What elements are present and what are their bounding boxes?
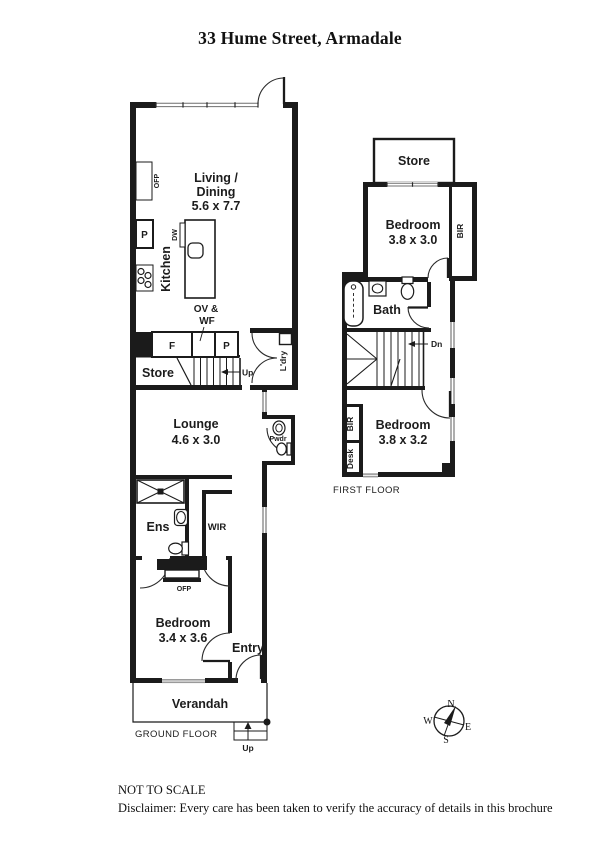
- disclaimer-text: Disclaimer: Every care has been taken to…: [118, 801, 553, 815]
- stairs-up-label: Up: [242, 368, 253, 378]
- bedroom-gf-dims: 3.4 x 3.6: [159, 631, 208, 645]
- pantry-upper-label: P: [141, 230, 148, 241]
- living-dining-label2: Dining: [197, 185, 236, 199]
- ensuite-label: Ens: [147, 520, 170, 534]
- steps-up-label: Up: [242, 743, 253, 753]
- bedroom2-dims: 3.8 x 3.2: [379, 433, 428, 447]
- first-floor-stairs: [347, 332, 428, 386]
- ofp-living-label: OFP: [154, 173, 161, 188]
- washing-machine-icon: [280, 334, 292, 345]
- kitchen-label: Kitchen: [159, 246, 173, 292]
- compass-north-label: N: [447, 699, 454, 710]
- dishwasher-icon: [180, 223, 185, 247]
- bedroom1-label: Bedroom: [386, 218, 441, 232]
- compass-rose-icon: N S E W: [423, 699, 471, 746]
- bedroom-gf-label: Bedroom: [156, 616, 211, 630]
- compass-south-label: S: [443, 735, 449, 746]
- dishwasher-label: DW: [172, 229, 179, 241]
- island-bench: [185, 220, 215, 298]
- bath-toilet-icon: [401, 284, 413, 300]
- bath-fixtures: [344, 277, 414, 326]
- bath-toilet-cistern: [402, 277, 413, 284]
- bathtub-icon: [344, 281, 363, 326]
- ensuite-toilet-cistern: [182, 542, 189, 555]
- oven-box: [192, 332, 215, 357]
- wir-label: WIR: [208, 522, 227, 533]
- up-arrow-icon: [221, 369, 240, 375]
- bir2-label: BIR: [345, 417, 355, 432]
- lounge-label: Lounge: [173, 417, 218, 431]
- oven-label-line1: OV &: [194, 304, 218, 315]
- powder-label: Pwdr: [269, 436, 286, 443]
- powder-toilet-cistern: [287, 443, 291, 455]
- not-to-scale-note: NOT TO SCALE: [118, 783, 206, 797]
- ground-floor-caption: GROUND FLOOR: [135, 729, 217, 740]
- bedroom1-dims: 3.8 x 3.0: [389, 233, 438, 247]
- oven-label-line2: WF: [199, 316, 215, 327]
- fireplace-slot: [143, 169, 149, 193]
- bath-label: Bath: [373, 303, 401, 317]
- sink-icon: [188, 243, 203, 258]
- store-ff-label: Store: [398, 154, 430, 168]
- compass-west-label: W: [423, 716, 433, 727]
- first-floor-caption: FIRST FLOOR: [333, 485, 400, 496]
- ground-floor-stairs: [177, 358, 240, 385]
- living-dining-dims: 5.6 x 7.7: [192, 199, 241, 213]
- page-title: 33 Hume Street, Armadale: [198, 28, 402, 48]
- stairs-down-label: Dn: [431, 339, 442, 349]
- laundry-label: L'dry: [278, 351, 288, 372]
- pantry-lower-label: P: [223, 341, 230, 352]
- floorplan-page: 33 Hume Street, Armadale: [0, 0, 600, 849]
- powder-toilet-icon: [277, 443, 287, 455]
- fridge-label: F: [169, 341, 175, 352]
- lounge-dims: 4.6 x 3.0: [172, 433, 221, 447]
- entry-label: Entry: [232, 641, 264, 655]
- bir1-label: BIR: [455, 224, 465, 239]
- ofp-bedroom-label: OFP: [177, 586, 192, 593]
- floor-plan-image: 33 Hume Street, Armadale: [0, 0, 600, 849]
- bedroom2-label: Bedroom: [376, 418, 431, 432]
- ensuite-toilet-icon: [169, 543, 183, 554]
- store-label: Store: [142, 366, 174, 380]
- ensuite-fixtures: [137, 480, 189, 555]
- fireplace-bedroom-icon: [157, 559, 207, 582]
- verandah-label: Verandah: [172, 697, 228, 711]
- desk-label: Desk: [345, 449, 355, 470]
- down-arrow-icon: [408, 341, 428, 347]
- living-dining-label: Living /: [194, 171, 238, 185]
- compass-east-label: E: [465, 722, 471, 733]
